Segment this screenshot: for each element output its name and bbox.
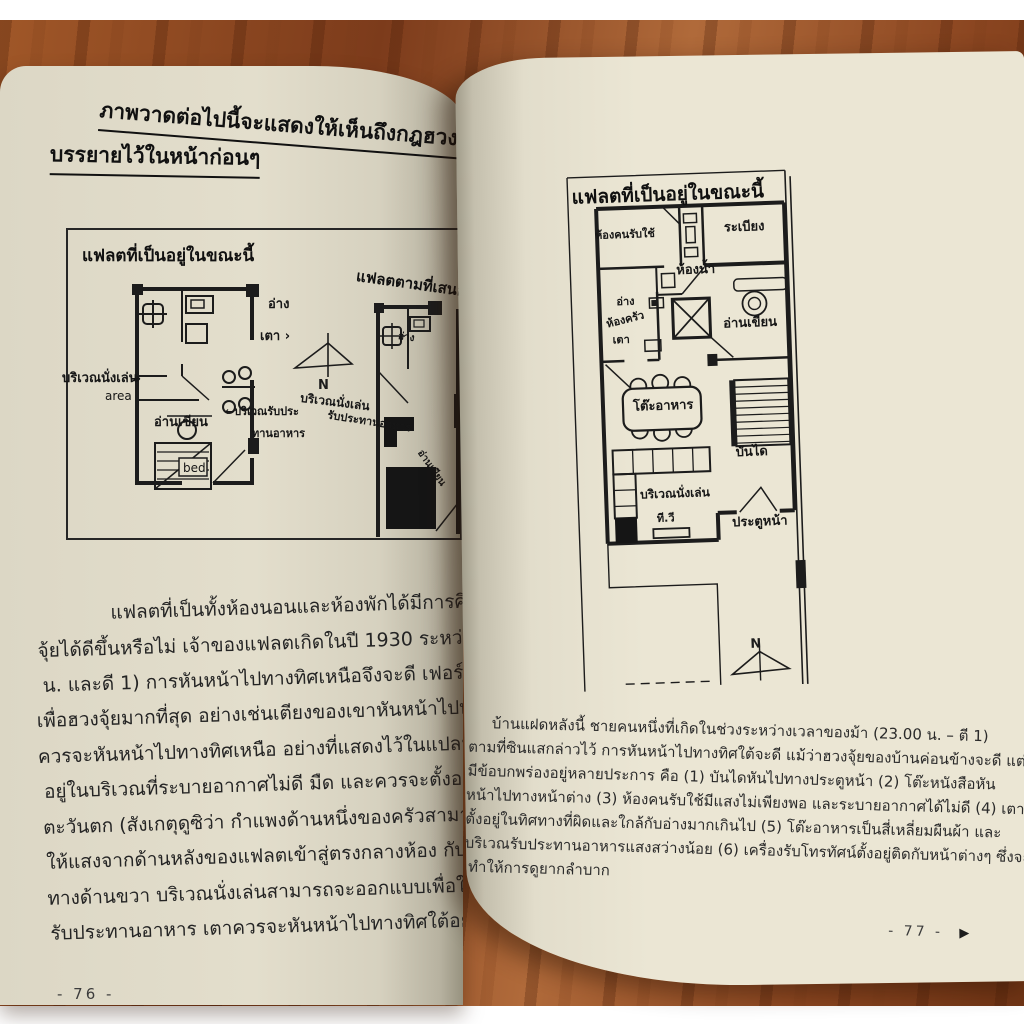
body-line: แฟลตที่เป็นทั้งห้องนอนและห้องพักได้มีการ…: [110, 584, 463, 627]
next-page-icon: ▶: [959, 926, 969, 941]
right-page-paragraph: บ้านแฝดหลังนี้ ชายคนหนึ่งที่เกิดในช่วงระ…: [457, 59, 1024, 989]
body-line: ทำให้การดูยากลำบาก: [468, 855, 610, 883]
left-page-paragraph: แฟลตที่เป็นทั้งห้องนอนและห้องพักได้มีการ…: [0, 66, 463, 1005]
book-photo: ภาพวาดต่อไปนี้จะแสดงให้เห็นถึงกฎฮวงจุ้ย …: [0, 0, 1024, 1024]
body-line: อยู่ในบริเวณที่ระบายอากาศไม่ดี มืด และคว…: [44, 763, 463, 806]
left-page: ภาพวาดต่อไปนี้จะแสดงให้เห็นถึงกฎฮวงจุ้ย …: [0, 66, 463, 1005]
left-page-number: - 76 -: [57, 985, 114, 1003]
right-page: N แฟลตที่เป็นอยู่ในขณะนี้ ห้องคนรับใช้ ร…: [455, 51, 1024, 989]
right-page-number: - 77 -: [888, 923, 943, 940]
